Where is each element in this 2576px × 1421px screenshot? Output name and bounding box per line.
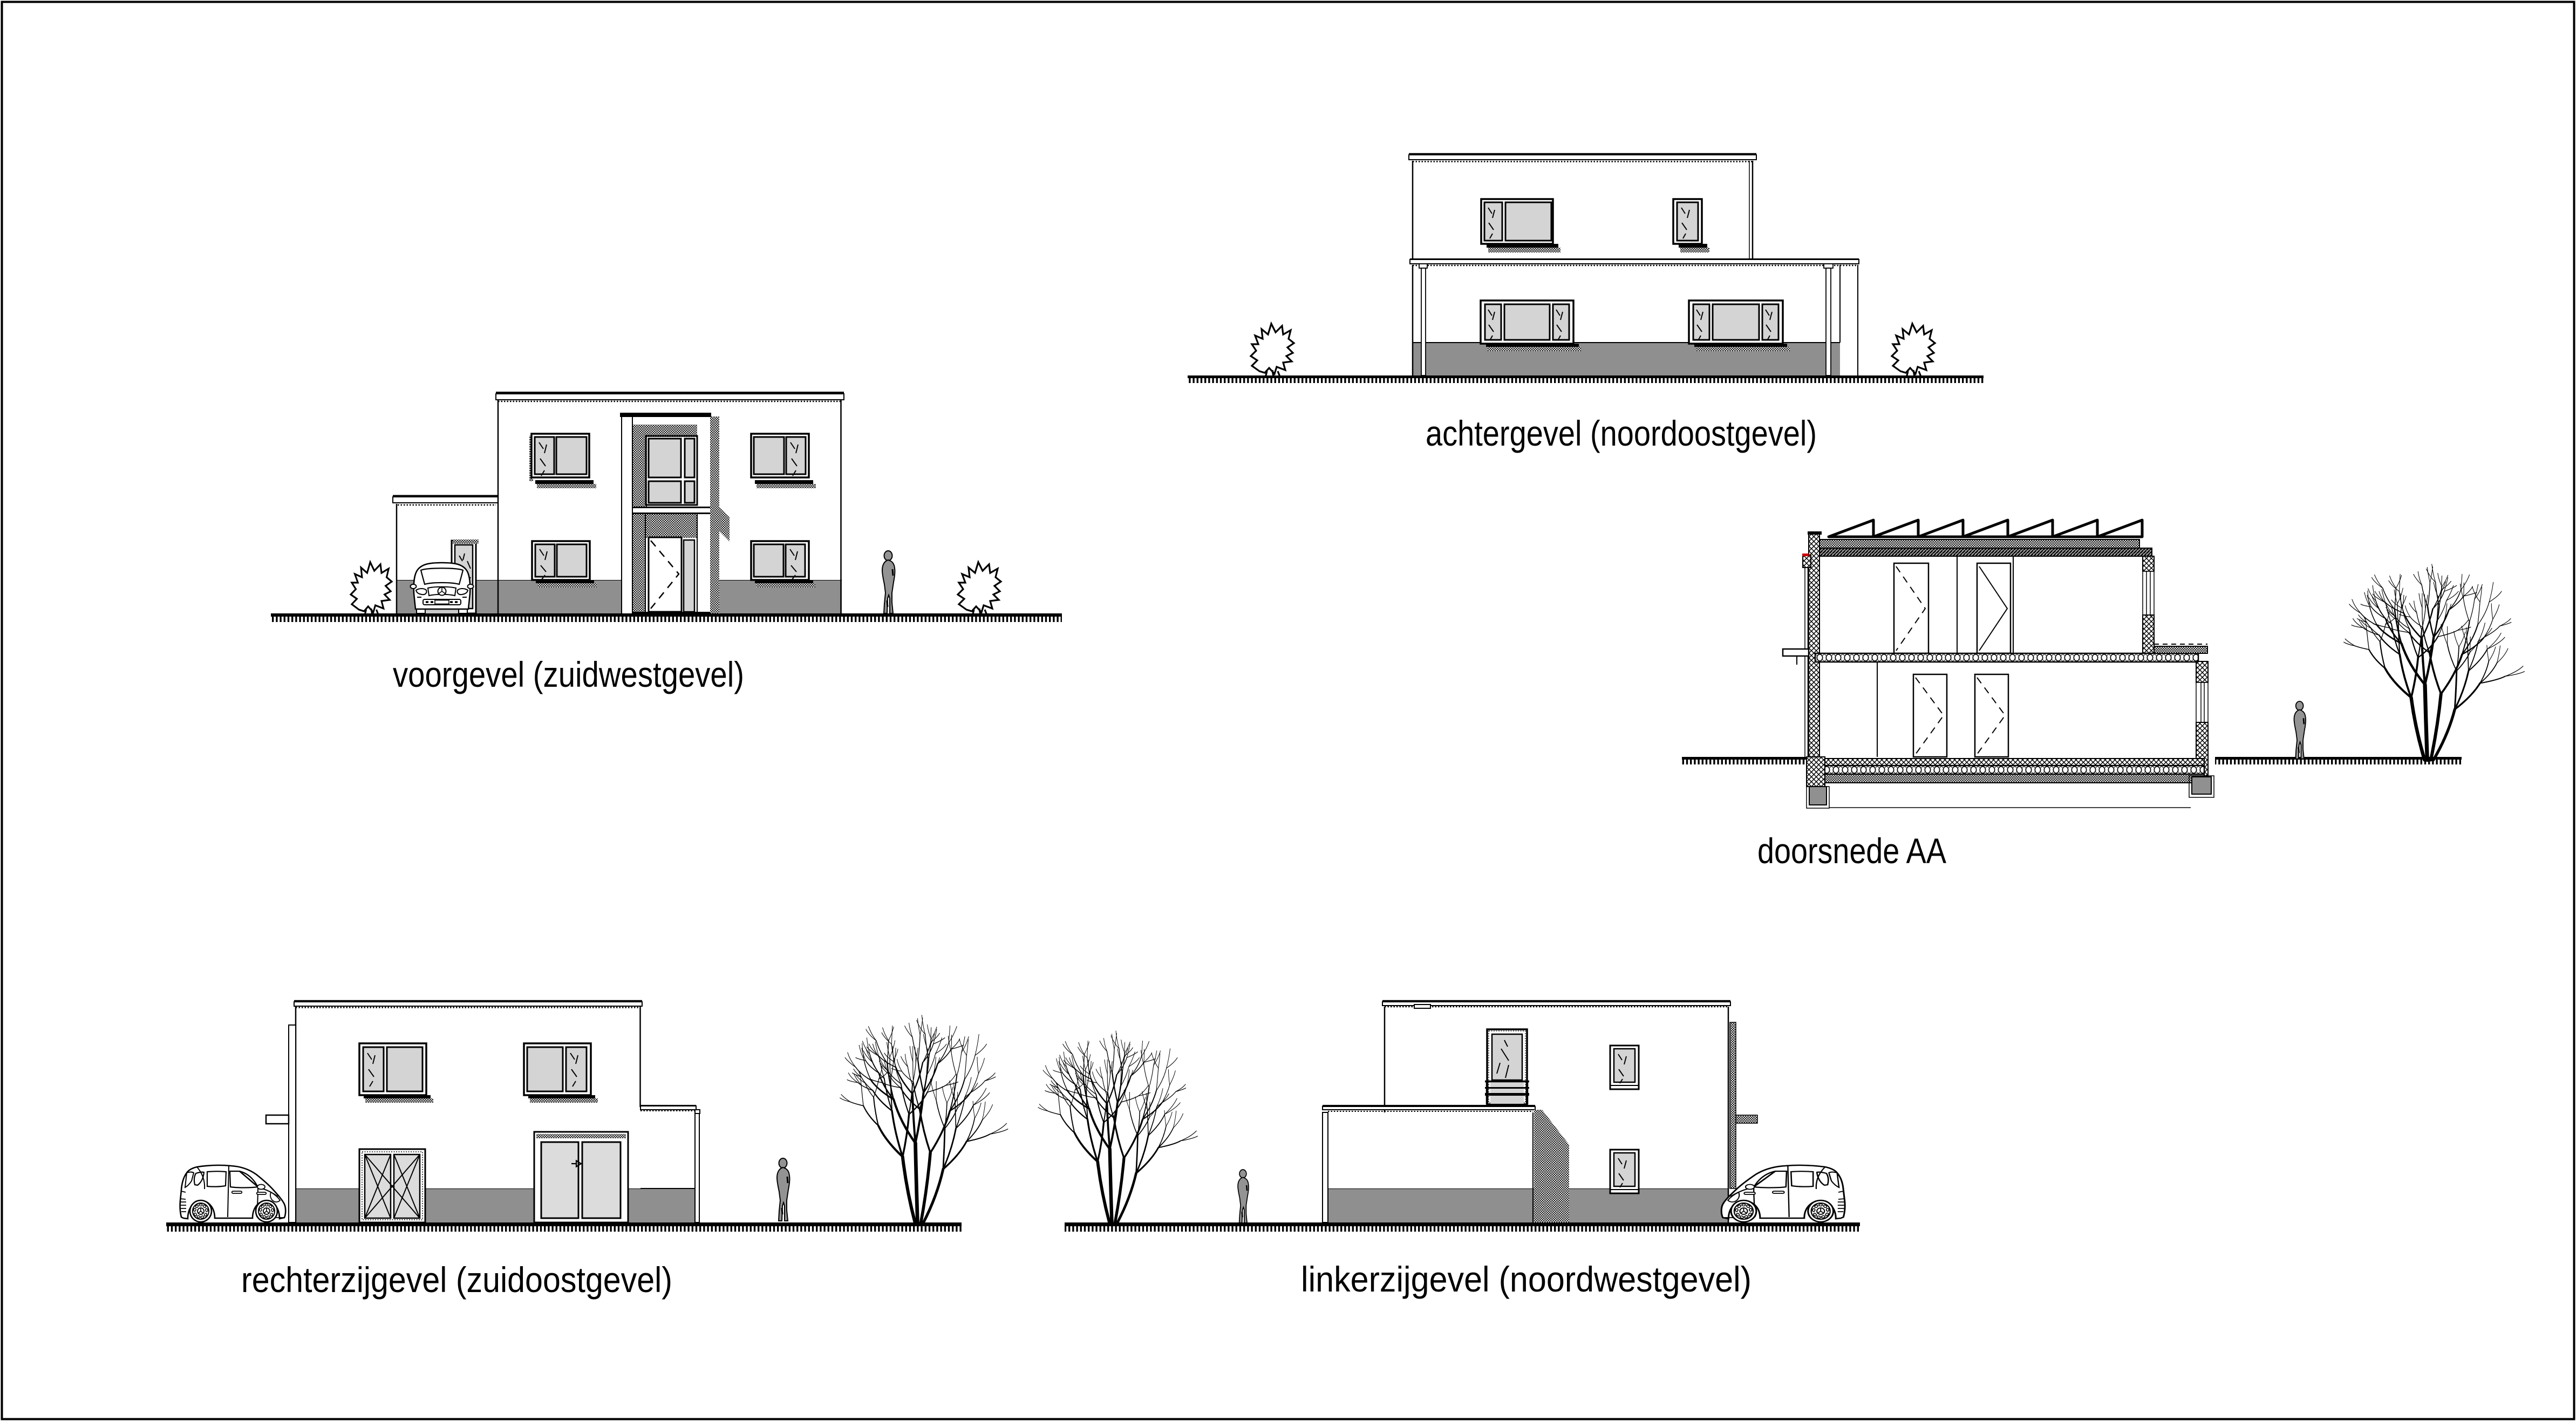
svg-text:rechterzijgevel (zuidoostgevel: rechterzijgevel (zuidoostgevel) [241,1260,672,1300]
svg-text:voorgevel (zuidwestgevel): voorgevel (zuidwestgevel) [393,654,744,694]
svg-text:achtergevel (noordoostgevel): achtergevel (noordoostgevel) [1426,413,1817,453]
svg-text:doorsnede AA: doorsnede AA [1757,831,1946,871]
svg-text:linkerzijgevel (noordwestgevel: linkerzijgevel (noordwestgevel) [1301,1259,1752,1299]
